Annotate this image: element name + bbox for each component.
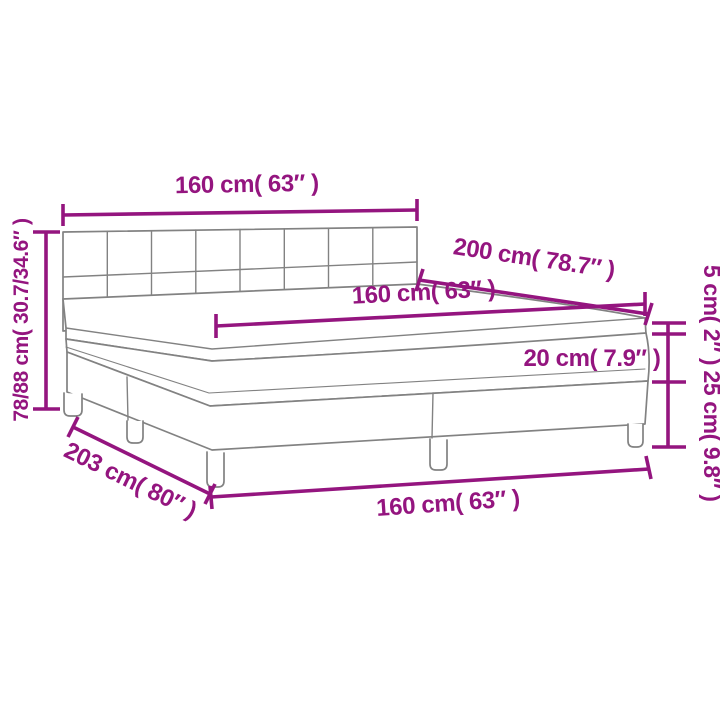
label-base-width: 160 cm( 63″ ) xyxy=(375,485,520,522)
bed-leg xyxy=(430,439,447,470)
bed-leg xyxy=(127,421,143,443)
label-mattress-thickness: 20 cm( 7.9″ ) xyxy=(523,345,660,372)
label-total-height: 78/88 cm( 30.7/34.6″ ) xyxy=(10,218,33,421)
label-topper-thickness: 5 cm( 2″ ) xyxy=(699,265,720,365)
dim-headboard-width xyxy=(63,199,417,226)
bed-leg xyxy=(64,393,82,416)
base-seam-front xyxy=(432,393,433,438)
dim-total-height xyxy=(33,232,60,409)
label-base-height: 25 cm( 9.8″ ) xyxy=(699,370,720,501)
bed-leg xyxy=(207,452,224,487)
product-dimension-diagram: 160 cm( 63″ ) 200 cm( 78.7″ ) 160 cm( 63… xyxy=(0,0,720,720)
base-seam-left xyxy=(127,377,128,420)
label-headboard-width: 160 cm( 63″ ) xyxy=(175,170,319,200)
diagram-canvas: 160 cm( 63″ ) 200 cm( 78.7″ ) 160 cm( 63… xyxy=(0,0,720,720)
dim-right-stack xyxy=(652,323,686,447)
bed-leg xyxy=(628,424,643,447)
